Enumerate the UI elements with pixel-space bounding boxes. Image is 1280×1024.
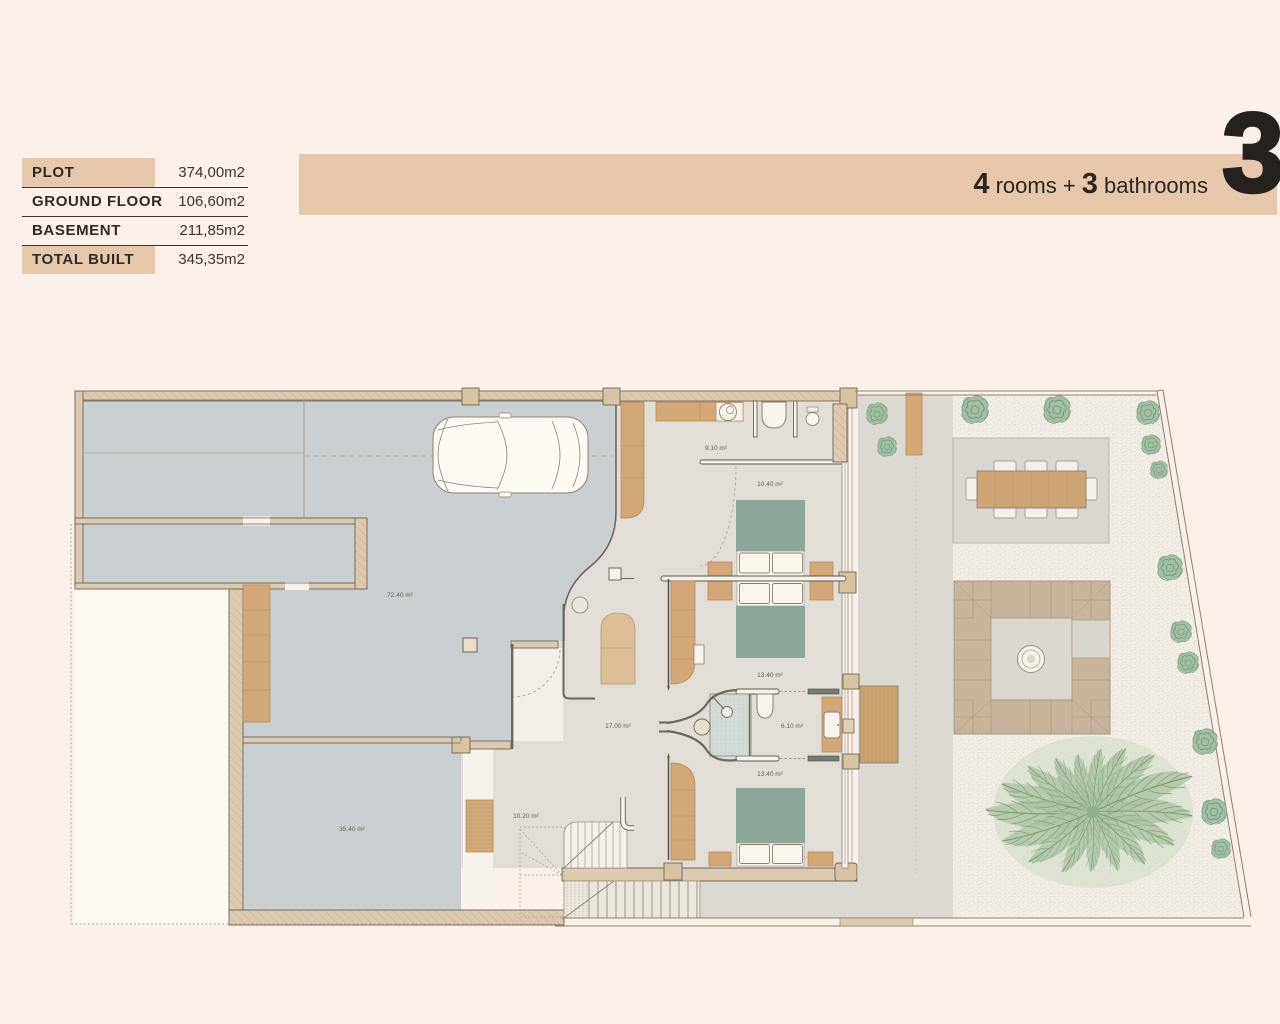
- svg-text:35.40 m²: 35.40 m²: [339, 826, 365, 833]
- svg-text:13.40 m²: 13.40 m²: [757, 771, 783, 778]
- svg-text:10.40 m²: 10.40 m²: [757, 481, 783, 488]
- svg-text:6.10 m²: 6.10 m²: [781, 723, 804, 730]
- svg-text:10.20 m²: 10.20 m²: [513, 813, 539, 820]
- svg-text:13.40 m²: 13.40 m²: [757, 672, 783, 679]
- svg-text:9.10 m²: 9.10 m²: [705, 445, 728, 452]
- svg-text:17.00 m²: 17.00 m²: [605, 723, 631, 730]
- svg-text:72.40 m²: 72.40 m²: [387, 592, 413, 599]
